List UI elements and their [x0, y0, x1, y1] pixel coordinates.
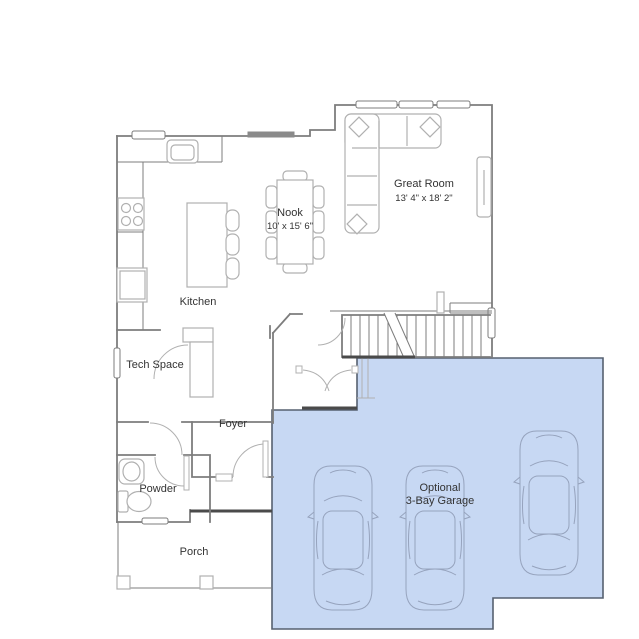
refrigerator — [117, 268, 147, 302]
kitchen-island — [187, 203, 239, 287]
nook-chair — [313, 211, 324, 233]
porch-post — [117, 576, 130, 589]
nook-diagonal-wall — [270, 314, 302, 338]
stair-landing — [437, 292, 492, 313]
great-room-label: Great Room — [394, 178, 454, 190]
stair-treads — [351, 315, 481, 357]
great-room-window-2 — [399, 101, 433, 108]
garage-label-line2: 3-Bay Garage — [406, 495, 474, 507]
foyer-front-wall — [192, 422, 273, 477]
porch-label: Porch — [180, 546, 209, 558]
kitchen-window — [132, 131, 165, 139]
front-door — [216, 441, 268, 481]
tech-space-window — [114, 348, 120, 378]
stair-door-arc — [318, 318, 345, 345]
fireplace — [477, 157, 491, 217]
hall-door-arc — [150, 423, 182, 455]
stair-break-mask — [384, 313, 415, 358]
powder-vent-window — [142, 518, 168, 524]
powder-sink — [119, 459, 144, 484]
floor-plan: Nook 10' x 15' 6" Great Room 13' 4" x 18… — [0, 0, 639, 639]
great-room-dimensions: 13' 4" x 18' 2" — [395, 193, 452, 204]
front-door-sidelite — [216, 474, 232, 481]
great-room-area — [345, 114, 491, 234]
tech-space-shelf-top — [183, 328, 213, 342]
tech-space-cabinet — [190, 342, 213, 397]
garage-label-line1: Optional — [420, 482, 461, 494]
foyer-label: Foyer — [219, 418, 247, 430]
floor-plan-canvas: Nook 10' x 15' 6" Great Room 13' 4" x 18… — [0, 0, 639, 639]
kitchen-label: Kitchen — [180, 296, 217, 308]
kitchen-sink-basin — [171, 145, 194, 160]
front-door-leaf — [263, 441, 268, 477]
front-door-arc — [233, 444, 263, 477]
great-room-window-1 — [356, 101, 397, 108]
cooktop — [118, 198, 144, 230]
porch-post — [200, 576, 213, 589]
nook-chair — [313, 186, 324, 208]
great-room-window-3 — [437, 101, 470, 108]
staircase — [318, 292, 492, 358]
tech-space-label: Tech Space — [126, 359, 183, 371]
nook-window — [248, 132, 294, 137]
sectional-sofa — [345, 114, 441, 234]
powder-label: Powder — [139, 483, 177, 495]
closet-double-doors — [296, 366, 358, 391]
kitchen-area — [117, 136, 239, 330]
nook-chair — [266, 186, 277, 208]
nook-chair — [313, 237, 324, 259]
nook-dimensions: 10' x 15' 6" — [267, 221, 313, 232]
nook-chair — [266, 237, 277, 259]
nook-label: Nook — [277, 207, 303, 219]
